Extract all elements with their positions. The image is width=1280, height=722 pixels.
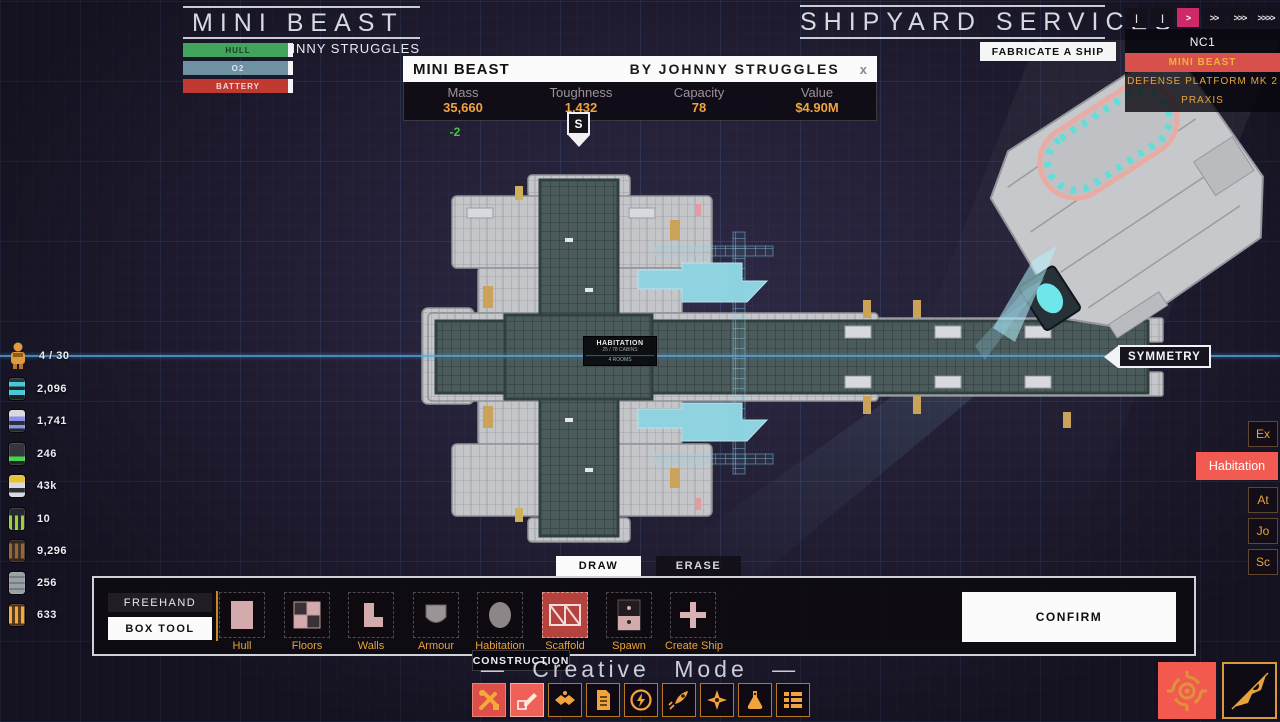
habitation-cabins-count: 25 / 78 CABINS [586,347,654,353]
tool-create-ship-label: Create Ship [654,640,734,652]
component-crate-icon [8,571,26,595]
resource-crew: 4 / 30 [8,342,70,369]
symmetry-marker-flag[interactable]: S [567,112,590,147]
fleet-item-defense-platform[interactable]: DEFENSE PLATFORM MK 2 [1125,72,1280,91]
tab-erase[interactable]: ERASE [656,556,741,576]
research-menu-button[interactable] [738,683,772,717]
inventory-menu-button[interactable] [776,683,810,717]
tool-floors-label: Floors [272,640,342,652]
resource-fuel-value: 1,741 [37,415,67,427]
thruster-menu-button[interactable] [662,683,696,717]
resource-crate-value: 256 [37,577,57,589]
stat-mass-value: 35,660 [404,101,522,116]
symmetry-marker-pointer [568,135,590,147]
tool-walls[interactable] [348,592,394,638]
symmetry-toggle[interactable]: SYMMETRY [1104,345,1211,368]
ship-name-title: MINI BEAST [192,9,404,38]
ship-stats-row: Mass 35,660 Toughness 1,432 Capacity 78 … [403,82,877,121]
fleet-nav-play[interactable]: > [1177,8,1199,27]
shipyard-underline [800,37,1105,39]
metal-rack-icon [8,539,26,563]
tool-floors[interactable] [284,592,330,638]
fleet-item-praxis[interactable]: PRAXIS [1125,91,1280,110]
symmetry-marker-letter: S [567,112,590,135]
construction-menu-button[interactable] [472,683,506,717]
symmetry-arrow-icon [1104,346,1118,368]
resource-fuel: 1,741 [8,409,67,433]
battery-icon [8,442,26,466]
box-tool-label: BOX TOOL [125,623,194,635]
hull-bar: HULL [183,43,293,57]
tool-scaffold[interactable] [542,592,588,638]
research-flask-icon [743,688,767,712]
fuel-drum-icon [8,474,26,498]
fuel-tank-icon [8,409,26,433]
walls-icon [357,601,385,629]
stat-capacity: Capacity 78 [640,86,758,116]
build-toolbar: FREEHAND BOX TOOL Hull Floors Walls Armo… [92,576,1196,656]
resource-metal-value: 9,296 [37,545,67,557]
habitation-room-label: HABITATION 25 / 78 CABINS 4 ROOMS [583,336,657,366]
tool-spawn[interactable] [606,592,652,638]
tool-hull[interactable] [219,592,265,638]
fleet-nav-faster[interactable]: >>> [1229,8,1251,27]
hull-icon [231,601,253,629]
fleet-list: NC1 MINI BEAST DEFENSE PLATFORM MK 2 PRA… [1125,29,1280,112]
title-overline [183,6,420,8]
fleet-item-nc1[interactable]: NC1 [1125,31,1280,53]
category-button-ex[interactable]: Ex [1248,421,1278,447]
edit-menu-button[interactable] [510,683,544,717]
category-button-habitation[interactable]: Habitation [1196,452,1278,480]
target-crosshair-icon [1166,670,1208,712]
stat-value-value: $4.90M [758,101,876,116]
category-jo-label: Jo [1257,524,1270,538]
spawn-icon [617,599,641,631]
stat-value: Value $4.90M [758,86,876,116]
ingot-rack-icon [8,603,26,627]
habitation-icon [485,600,515,630]
crew-icon [8,342,28,369]
game-mode-label: — Creative Mode — [0,656,1280,683]
ship-info-popup: MINI BEAST BY JOHNNY STRUGGLES x Mass 35… [403,56,877,121]
navigation-compass-icon [705,688,729,712]
oxygen-bar: O2 [183,61,293,75]
oxygen-bar-label: O2 [232,64,245,73]
contracts-document-icon [591,688,615,712]
confirm-button[interactable]: CONFIRM [962,592,1176,642]
power-cell-icon [8,507,26,531]
tab-draw-label: DRAW [579,560,619,572]
toolbar-divider [216,591,218,641]
shipyard-title: SHIPYARD SERVICES [800,8,1105,37]
resource-crate: 256 [8,571,57,595]
armour-icon [422,601,450,629]
tab-draw[interactable]: DRAW [556,556,641,576]
resource-ingot-value: 633 [37,609,57,621]
hull-bar-label: HULL [225,46,250,55]
ship-info-header: MINI BEAST BY JOHNNY STRUGGLES x [403,56,877,82]
fabricate-ship-label: FABRICATE A SHIP [992,46,1104,58]
game-viewport: HABITATION 25 / 78 CABINS 4 ROOMS SYMMET… [0,0,1280,722]
category-at-label: At [1257,493,1268,507]
resource-drum-value: 43k [37,480,57,492]
title-underline [183,37,420,39]
tool-armour[interactable] [413,592,459,638]
inventory-list-icon [781,688,805,712]
resource-battery-value: 246 [37,448,57,460]
launch-ship-button[interactable] [1222,662,1277,719]
resource-power-cell-value: 10 [37,513,50,525]
habitation-room-title: HABITATION [586,340,654,347]
create-ship-icon [680,602,706,628]
ship-status-bars: HULL O2 BATTERY [183,43,293,97]
thruster-rocket-icon [667,688,691,712]
resource-crew-value: 4 / 30 [39,350,70,362]
tool-walls-label: Walls [336,640,406,652]
category-habitation-label: Habitation [1209,459,1265,473]
stat-toughness-label: Toughness [522,86,640,101]
category-button-at[interactable]: At [1248,487,1278,513]
power-bolt-icon [629,688,653,712]
resource-drum: 43k [8,474,57,498]
category-button-jo[interactable]: Jo [1248,518,1278,544]
category-sc-label: Sc [1256,555,1270,569]
launch-ship-icon [1230,671,1270,711]
scaffold-icon [549,604,581,626]
resource-metal: 9,296 [8,539,67,563]
freehand-mode-button[interactable]: FREEHAND [108,593,212,612]
contracts-menu-button[interactable] [586,683,620,717]
tool-create-ship[interactable] [670,592,716,638]
habitation-rooms-count: 4 ROOMS [586,355,654,363]
stat-capacity-value: 78 [640,101,758,116]
target-mode-button[interactable] [1158,662,1216,719]
fleet-nav-fastest[interactable]: >>>> [1255,8,1277,27]
fleet-nav-buttons: | | > >> >>> >>>> [1125,8,1277,27]
bottom-menu [472,683,810,717]
fabricate-ship-button[interactable]: FABRICATE A SHIP [980,42,1116,61]
tab-erase-label: ERASE [676,560,721,572]
trade-handshake-icon [553,688,577,712]
navigation-menu-button[interactable] [700,683,734,717]
power-menu-button[interactable] [624,683,658,717]
freehand-label: FREEHAND [124,597,197,609]
resource-ingot: 633 [8,603,57,627]
resource-power-cell: 10 [8,507,50,531]
symmetry-label: SYMMETRY [1118,345,1211,368]
fleet-nav-first[interactable]: | [1125,8,1147,27]
resource-oxygen: 2,096 [8,377,67,401]
edit-pencil-icon [515,688,539,712]
trade-menu-button[interactable] [548,683,582,717]
fleet-nav-prev-stop[interactable]: | [1151,8,1173,27]
stat-capacity-label: Capacity [640,86,758,101]
category-ex-label: Ex [1256,427,1270,441]
box-tool-mode-button[interactable]: BOX TOOL [108,617,212,640]
tool-armour-label: Armour [401,640,471,652]
mass-delta: -2 [440,125,470,139]
shipyard-overline [800,5,1105,7]
oxygen-tank-icon [8,377,26,401]
tool-habitation[interactable] [477,592,523,638]
fleet-nav-fast[interactable]: >> [1203,8,1225,27]
category-button-sc[interactable]: Sc [1248,549,1278,575]
battery-bar: BATTERY [183,79,293,93]
close-icon[interactable]: x [860,62,867,77]
popup-ship-name: MINI BEAST [413,61,510,78]
stat-value-label: Value [758,86,876,101]
confirm-label: CONFIRM [1036,610,1103,624]
popup-ship-author: BY JOHNNY STRUGGLES [630,61,860,77]
floors-icon [293,601,321,629]
stat-mass: Mass 35,660 [404,86,522,116]
construction-tools-icon [477,688,501,712]
resource-battery: 246 [8,442,57,466]
tool-hull-label: Hull [207,640,277,652]
fleet-item-mini-beast[interactable]: MINI BEAST [1125,53,1280,72]
resource-oxygen-value: 2,096 [37,383,67,395]
battery-bar-label: BATTERY [216,82,260,91]
stat-mass-label: Mass [404,86,522,101]
